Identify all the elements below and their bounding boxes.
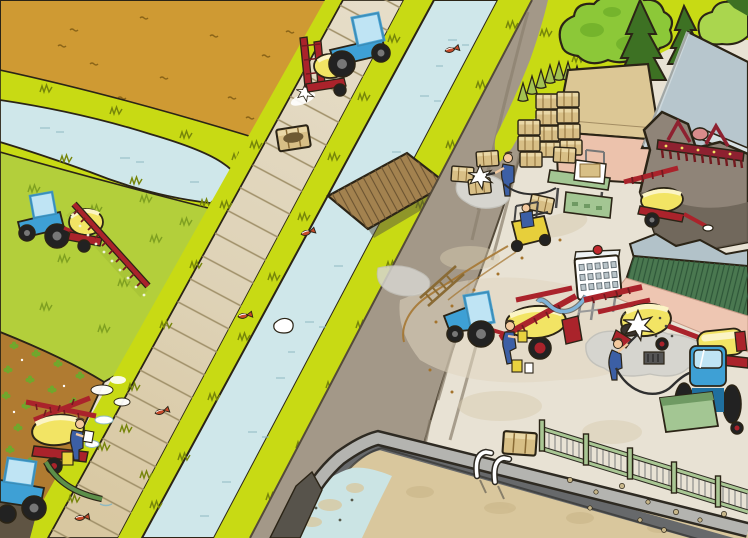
- jerrycan: [62, 452, 73, 465]
- farm-illustration: [0, 0, 748, 538]
- roadside-crate: [276, 125, 311, 151]
- drain-grate: [644, 352, 664, 364]
- canister: [83, 430, 94, 442]
- tank-cap: [593, 245, 603, 255]
- illustration-canvas: [0, 0, 748, 538]
- crate-on-rim: [502, 431, 536, 456]
- canister: [525, 363, 533, 373]
- jerrycan: [512, 360, 522, 372]
